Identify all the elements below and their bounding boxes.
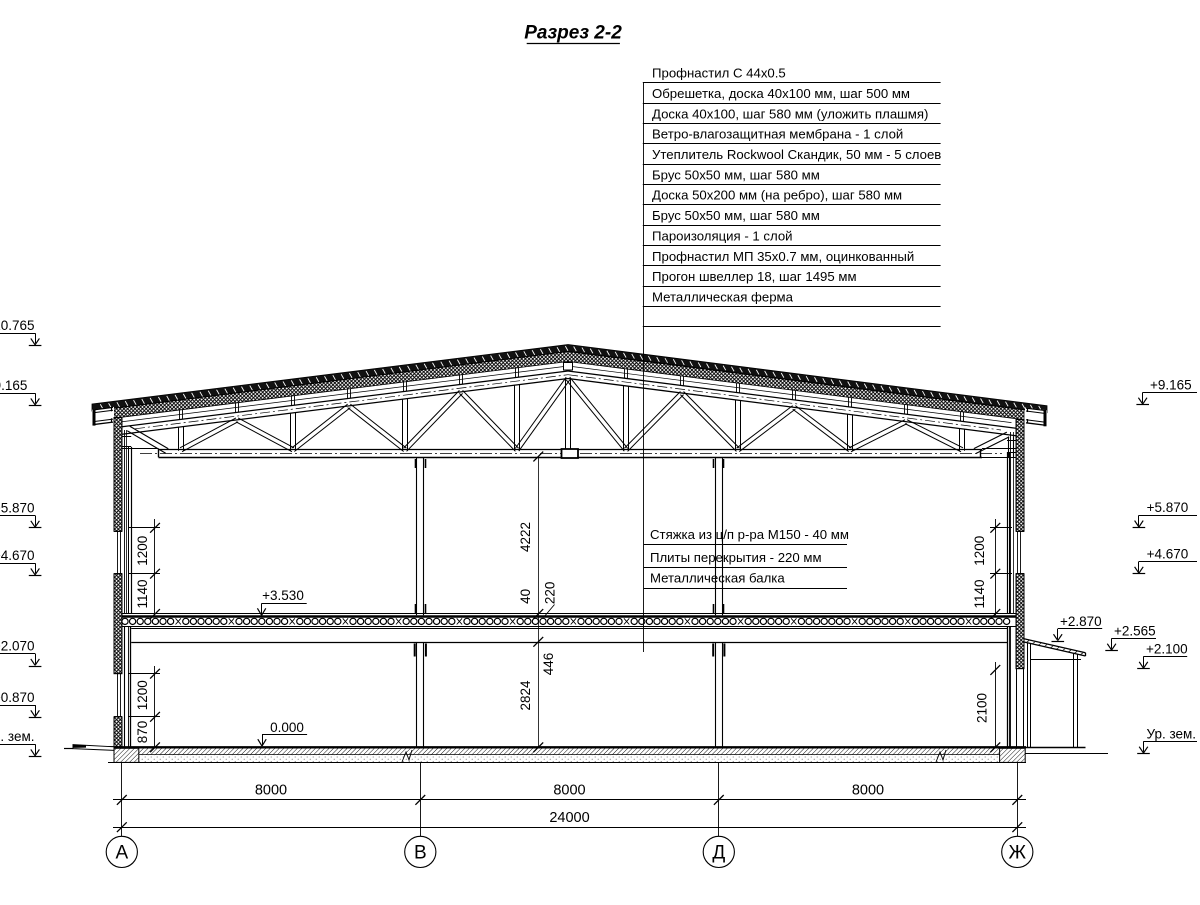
svg-text:1200: 1200	[135, 536, 150, 566]
svg-text:+10.765: +10.765	[0, 318, 35, 333]
svg-text:Профнастил С 44х0.5: Профнастил С 44х0.5	[652, 66, 786, 81]
svg-text:Ж: Ж	[1009, 842, 1027, 863]
svg-text:Д: Д	[712, 842, 725, 863]
svg-text:+9.165: +9.165	[0, 378, 27, 393]
svg-text:40: 40	[518, 589, 533, 604]
svg-text:Ур. зем.: Ур. зем.	[0, 729, 35, 744]
svg-text:Металлическая балка: Металлическая балка	[650, 571, 785, 586]
svg-text:0.000: 0.000	[270, 720, 304, 735]
svg-text:+2.565: +2.565	[1114, 623, 1156, 638]
svg-text:+2.070: +2.070	[0, 639, 35, 654]
svg-text:Разрез 2-2: Разрез 2-2	[524, 23, 622, 44]
svg-text:Профнастил МП 35х0.7 мм, оцинк: Профнастил МП 35х0.7 мм, оцинкованный	[652, 249, 914, 264]
svg-text:Плиты перекрытия - 220 мм: Плиты перекрытия - 220 мм	[650, 550, 822, 565]
svg-text:+4.670: +4.670	[0, 548, 35, 563]
svg-text:А: А	[115, 842, 128, 863]
svg-text:4222: 4222	[518, 522, 533, 552]
svg-text:8000: 8000	[852, 783, 884, 799]
svg-text:220: 220	[543, 582, 558, 605]
svg-text:8000: 8000	[255, 783, 287, 799]
svg-text:Доска 40х100, шаг 580 мм (улож: Доска 40х100, шаг 580 мм (уложить плашмя…	[652, 106, 928, 121]
svg-text:+5.870: +5.870	[1147, 500, 1189, 515]
svg-text:1140: 1140	[135, 579, 150, 608]
svg-text:1140: 1140	[972, 579, 987, 608]
svg-text:1200: 1200	[972, 536, 987, 566]
svg-text:24000: 24000	[549, 810, 589, 826]
svg-text:446: 446	[541, 653, 556, 676]
svg-text:Стяжка из ц/п р-ра М150 - 40 м: Стяжка из ц/п р-ра М150 - 40 мм	[650, 527, 849, 542]
svg-text:+2.870: +2.870	[1060, 614, 1102, 629]
svg-text:В: В	[414, 842, 427, 863]
svg-text:Ур. зем.: Ур. зем.	[1147, 726, 1197, 741]
svg-text:8000: 8000	[553, 783, 585, 799]
svg-text:Доска 50х200 мм (на ребро), ша: Доска 50х200 мм (на ребро), шаг 580 мм	[652, 188, 902, 203]
svg-text:870: 870	[135, 721, 150, 744]
svg-text:+2.100: +2.100	[1146, 641, 1188, 656]
svg-text:Ветро-влагозащитная мембрана -: Ветро-влагозащитная мембрана - 1 слой	[652, 127, 903, 142]
svg-text:2100: 2100	[975, 693, 990, 723]
svg-text:+5.870: +5.870	[0, 500, 35, 515]
svg-text:1200: 1200	[135, 680, 150, 710]
svg-text:+4.670: +4.670	[1147, 546, 1189, 561]
svg-text:2824: 2824	[518, 680, 533, 711]
svg-text:Прогон швеллер 18, шаг 1495 мм: Прогон швеллер 18, шаг 1495 мм	[652, 269, 857, 284]
svg-text:+9.165: +9.165	[1150, 377, 1192, 392]
svg-text:+0.870: +0.870	[0, 690, 35, 705]
svg-text:Брус 50х50 мм, шаг 580 мм: Брус 50х50 мм, шаг 580 мм	[652, 208, 820, 223]
svg-text:Утеплитель Rockwool Скандик, 5: Утеплитель Rockwool Скандик, 50 мм - 5 с…	[652, 147, 941, 162]
svg-text:Обрешетка, доска 40х100 мм, ша: Обрешетка, доска 40х100 мм, шаг 500 мм	[652, 86, 910, 101]
svg-text:Пароизоляция - 1 слой: Пароизоляция - 1 слой	[652, 228, 793, 243]
svg-text:Брус 50х50 мм, шаг 580 мм: Брус 50х50 мм, шаг 580 мм	[652, 167, 820, 182]
svg-text:+3.530: +3.530	[262, 588, 304, 603]
svg-text:Металлическая ферма: Металлическая ферма	[652, 290, 794, 305]
